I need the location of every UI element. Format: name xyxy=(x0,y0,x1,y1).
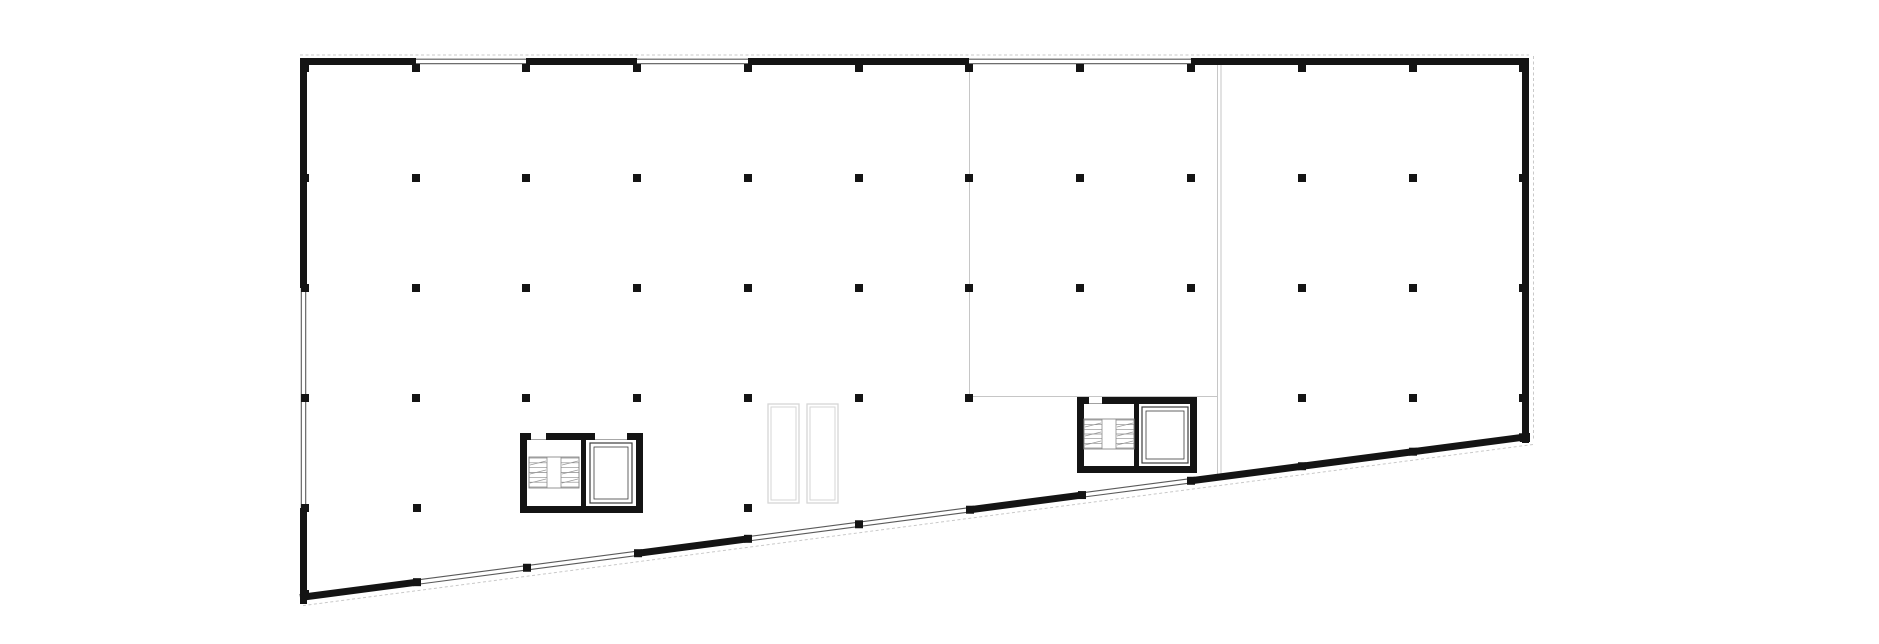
column xyxy=(1409,64,1417,72)
column xyxy=(1409,394,1417,402)
column xyxy=(633,174,641,182)
column xyxy=(744,394,752,402)
column xyxy=(744,174,752,182)
column xyxy=(855,174,863,182)
column xyxy=(1519,174,1527,182)
floor-plan-image xyxy=(0,0,1879,644)
column xyxy=(301,64,309,72)
column xyxy=(1298,462,1306,470)
column xyxy=(301,590,309,598)
column xyxy=(633,64,641,72)
roof-edge-dashed-bottom xyxy=(303,444,1533,605)
column xyxy=(301,504,309,512)
stair-core-1-divider-wall xyxy=(581,440,586,506)
bottom-wall-window-bay-6 xyxy=(1082,483,1191,497)
column xyxy=(1187,477,1195,485)
column xyxy=(412,394,420,402)
column xyxy=(744,64,752,72)
column xyxy=(1519,394,1527,402)
column xyxy=(744,535,752,543)
column xyxy=(522,284,530,292)
column xyxy=(1519,284,1527,292)
column xyxy=(1187,284,1195,292)
bottom-wall-window-bay-6 xyxy=(1082,479,1191,493)
stair-core-2-elevator-shaft xyxy=(1142,407,1188,463)
stair-core-1-door-gap-1 xyxy=(531,433,546,440)
column xyxy=(1409,448,1417,456)
column xyxy=(412,64,420,72)
column xyxy=(965,174,973,182)
column xyxy=(301,174,309,182)
column xyxy=(301,284,309,292)
column xyxy=(1298,64,1306,72)
column xyxy=(1187,174,1195,182)
light-wells xyxy=(768,404,838,503)
stair-core-2-divider-wall xyxy=(1134,404,1139,466)
light-well-2 xyxy=(807,404,838,503)
reference-dashed-lines xyxy=(300,55,1534,606)
column xyxy=(633,284,641,292)
stair-core-1 xyxy=(520,433,643,513)
column xyxy=(412,174,420,182)
stair-core-2 xyxy=(1077,397,1197,473)
column xyxy=(1078,491,1086,499)
column xyxy=(1076,174,1084,182)
column xyxy=(633,394,641,402)
column xyxy=(301,394,309,402)
column xyxy=(1519,64,1527,72)
bottom-wall-solid-bay-3 xyxy=(638,539,748,553)
column xyxy=(412,284,420,292)
column xyxy=(522,394,530,402)
column xyxy=(855,520,863,528)
stair-core-2-door-gap-1 xyxy=(1089,397,1102,404)
structural-columns xyxy=(301,64,1528,598)
column xyxy=(523,564,531,572)
stair-core-2-elevator xyxy=(1142,407,1188,463)
column xyxy=(522,64,530,72)
column xyxy=(744,504,752,512)
column xyxy=(966,506,974,514)
column xyxy=(1076,284,1084,292)
column xyxy=(1409,174,1417,182)
stair-core-1-elevator xyxy=(590,443,632,503)
column xyxy=(1076,64,1084,72)
column xyxy=(413,578,421,586)
column xyxy=(855,284,863,292)
light-well-1 xyxy=(768,404,799,503)
exterior-walls xyxy=(300,58,1530,604)
stair-core-1-elevator-shaft xyxy=(590,443,632,503)
column xyxy=(522,174,530,182)
column xyxy=(634,549,642,557)
column xyxy=(965,64,973,72)
floor-plan-svg xyxy=(0,0,1879,644)
column xyxy=(965,284,973,292)
column xyxy=(744,284,752,292)
column xyxy=(855,394,863,402)
column xyxy=(965,394,973,402)
column xyxy=(1187,64,1195,72)
column xyxy=(1298,284,1306,292)
column xyxy=(1409,284,1417,292)
bottom-wall-solid-bay-5 xyxy=(969,495,1082,510)
stair-core-1-door-gap-2 xyxy=(595,433,627,440)
column xyxy=(1298,394,1306,402)
bottom-wall-solid-bay-1 xyxy=(300,582,417,597)
column xyxy=(1298,174,1306,182)
bottom-wall-solid-bay-7 xyxy=(1191,437,1529,481)
column xyxy=(413,504,421,512)
column xyxy=(855,64,863,72)
column xyxy=(1520,434,1528,442)
